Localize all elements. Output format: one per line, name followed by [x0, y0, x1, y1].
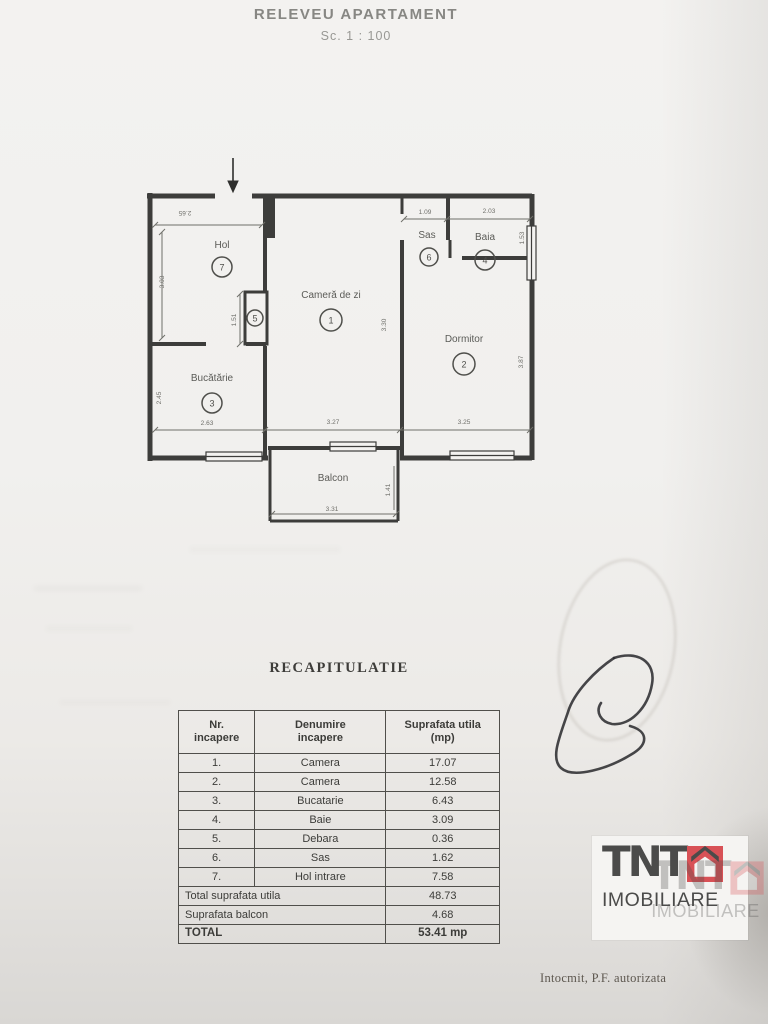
- dimension-labels: 2.65 3.03 1.51 1.09 2.03 1.53 3.30 3.87 …: [156, 208, 526, 513]
- room-number-baia: 4: [482, 256, 487, 266]
- room-number-debara: 5: [252, 314, 257, 324]
- dim-balcon-width: 3.31: [326, 506, 339, 513]
- bleedthrough-mark: [60, 700, 170, 705]
- recap-table: Nr. incapere Denumire incapere Suprafata…: [178, 710, 500, 944]
- cell-name: Baie: [255, 811, 386, 830]
- scanned-document-page: RELEVEU APARTAMENT Sc. 1 : 100: [0, 0, 768, 1024]
- room-number-hol: 7: [219, 263, 224, 273]
- stamp-and-signature: [530, 540, 720, 800]
- table-header-row: Nr. incapere Denumire incapere Suprafata…: [179, 711, 500, 754]
- total-label: TOTAL: [179, 925, 386, 944]
- footer-note: Intocmit, P.F. autorizata: [540, 971, 666, 986]
- cell-area: 0.36: [386, 830, 500, 849]
- room-label-camera-de-zi: Cameră de zi: [301, 290, 360, 301]
- dim-baia-width: 2.03: [483, 208, 496, 215]
- cell-name: Sas: [255, 849, 386, 868]
- room-number-camera: 1: [328, 316, 333, 326]
- dim-dormitor-width: 3.25: [458, 419, 471, 426]
- floor-plan: 2.65 3.03 1.51 1.09 2.03 1.53 3.30 3.87 …: [130, 148, 550, 543]
- cell-name: Hol intrare: [255, 868, 386, 887]
- room-label-bucatarie: Bucătărie: [191, 373, 234, 384]
- cell-area: 6.43: [386, 792, 500, 811]
- header-nr: Nr. incapere: [179, 711, 255, 754]
- table-row: 4. Baie 3.09: [179, 811, 500, 830]
- summary-row: Total suprafata utila 48.73: [179, 887, 500, 906]
- room-label-baia: Baia: [475, 232, 495, 243]
- cell-area: 1.62: [386, 849, 500, 868]
- room-label-sas: Sas: [418, 230, 435, 241]
- signature-stroke: [599, 656, 653, 725]
- summary-row: Suprafata balcon 4.68: [179, 906, 500, 925]
- table-row: 7. Hol intrare 7.58: [179, 868, 500, 887]
- table-row: 5. Debara 0.36: [179, 830, 500, 849]
- cell-area: 12.58: [386, 773, 500, 792]
- tnt-imobiliare-logo-ghost: TNT IMOBILIARE: [642, 852, 768, 949]
- title-block: RELEVEU APARTAMENT Sc. 1 : 100: [0, 6, 712, 43]
- table-row: 2. Camera 12.58: [179, 773, 500, 792]
- dimension-lines: [152, 216, 533, 517]
- room-number-bucatarie: 3: [209, 399, 214, 409]
- header-denumire: Denumire incapere: [255, 711, 386, 754]
- dim-bucatarie-width: 2.63: [201, 420, 214, 427]
- dim-closet: 1.51: [231, 313, 238, 326]
- room-label-balcon: Balcon: [318, 473, 349, 484]
- room-label-hol: Hol: [214, 240, 229, 251]
- dim-bucatarie-height: 2.45: [156, 391, 163, 404]
- dim-hol-width: 2.65: [178, 209, 191, 216]
- bleedthrough-mark: [34, 586, 142, 591]
- logo-ghost-text-tnt: TNT: [651, 858, 729, 895]
- table-row: 6. Sas 1.62: [179, 849, 500, 868]
- dim-hol-height: 3.03: [159, 275, 166, 288]
- cell-nr: 1.: [179, 754, 255, 773]
- entrance-arrow-icon: [228, 158, 238, 192]
- document-scale: Sc. 1 : 100: [0, 29, 712, 43]
- cell-area: 7.58: [386, 868, 500, 887]
- entrance-wall-stub: [263, 196, 275, 238]
- cell-area: 17.07: [386, 754, 500, 773]
- table-row: 3. Bucatarie 6.43: [179, 792, 500, 811]
- room-label-dormitor: Dormitor: [445, 334, 484, 345]
- dim-balcon-height: 1.41: [385, 483, 392, 496]
- dim-camera-width: 3.27: [327, 419, 340, 426]
- summary-value: 4.68: [386, 906, 500, 925]
- cell-area: 3.09: [386, 811, 500, 830]
- room-number-dormitor: 2: [461, 360, 466, 370]
- cell-nr: 4.: [179, 811, 255, 830]
- bleedthrough-mark: [46, 626, 132, 631]
- cell-nr: 6.: [179, 849, 255, 868]
- table-row: 1. Camera 17.07: [179, 754, 500, 773]
- cell-nr: 5.: [179, 830, 255, 849]
- dim-sas-width: 1.09: [419, 209, 432, 216]
- room-number-sas: 6: [426, 253, 431, 263]
- house-icon-ghost: [731, 861, 764, 899]
- total-row: TOTAL 53.41 mp: [179, 925, 500, 944]
- total-value: 53.41 mp: [386, 925, 500, 944]
- dim-baia-height: 1.53: [519, 231, 526, 244]
- cell-name: Camera: [255, 773, 386, 792]
- cell-name: Camera: [255, 754, 386, 773]
- cell-nr: 2.: [179, 773, 255, 792]
- bleedthrough-mark: [190, 547, 340, 552]
- header-suprafata: Suprafata utila (mp): [386, 711, 500, 754]
- cell-name: Bucatarie: [255, 792, 386, 811]
- logo-ghost-text-imobiliare: IMOBILIARE: [651, 901, 768, 922]
- summary-label: Suprafata balcon: [179, 906, 386, 925]
- dim-camera-height: 3.30: [381, 318, 388, 331]
- cell-name: Debara: [255, 830, 386, 849]
- summary-value: 48.73: [386, 887, 500, 906]
- recap-heading: RECAPITULATIE: [178, 660, 500, 677]
- summary-label: Total suprafata utila: [179, 887, 386, 906]
- cell-nr: 7.: [179, 868, 255, 887]
- document-title: RELEVEU APARTAMENT: [0, 6, 712, 23]
- dim-dormitor-height: 3.87: [518, 355, 525, 368]
- cell-nr: 3.: [179, 792, 255, 811]
